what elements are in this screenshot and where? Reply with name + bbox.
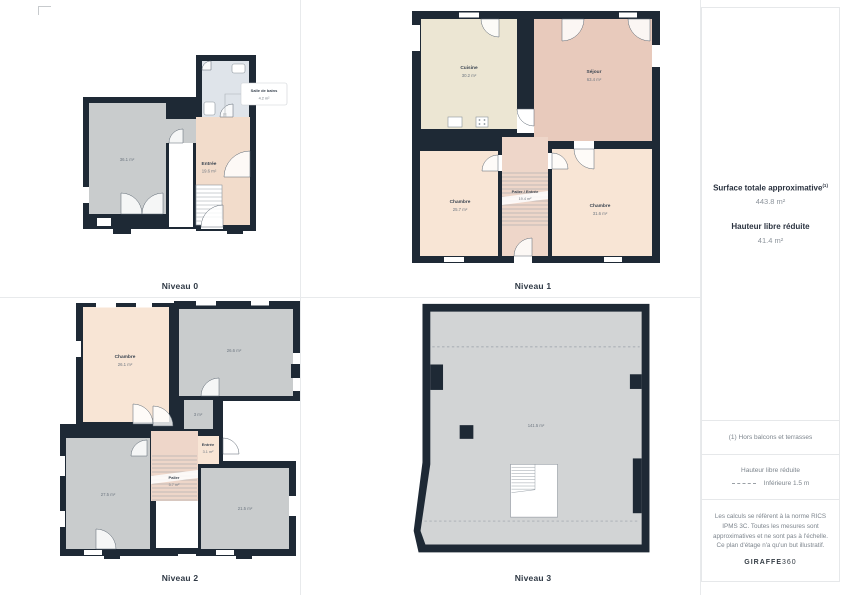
room-name: Entrée: [202, 442, 215, 447]
room-area: 3 m²: [194, 412, 203, 417]
reduced-height-value: 41.4 m²: [758, 236, 783, 245]
room-area: 25.7 m²: [453, 207, 468, 212]
room-area: 5.7 m²: [169, 483, 180, 487]
floor-plan-niveau-1: Cuisine 30.2 m² Séjour 63.4 m² Chambre 2…: [404, 11, 664, 269]
room-name: Palier: [169, 475, 180, 480]
room-name: Chambre: [590, 203, 611, 209]
room-area: 19.6 m²: [202, 169, 217, 174]
corner-mark-icon: [38, 6, 51, 15]
floor-plan-niveau-2: Chambre 26.1 m² 26.6 m² 3 m² Entrée 3.1 …: [56, 296, 306, 568]
legend-title: Hauteur libre réduite: [741, 467, 800, 474]
brand-bold: GIRAFFE: [744, 559, 782, 566]
level-title-niveau-2: Niveau 2: [110, 573, 250, 583]
room-name: Entrée: [202, 161, 217, 167]
footnote-text: (1) Hors balcons et terrasses: [729, 434, 812, 441]
level-title-niveau-0: Niveau 0: [110, 281, 250, 291]
room-area: 31.6 m²: [593, 211, 608, 216]
room-area: 30.2 m²: [462, 73, 477, 78]
disclaimer-panel: Les calculs se réfèrent à la norme RICS …: [701, 499, 840, 582]
floor-plan-niveau-3: 141.5 m²: [406, 296, 664, 568]
room-name: Salle de bains: [251, 88, 278, 93]
totals-panel: Surface totale approximative(1) 443.8 m²…: [701, 7, 840, 421]
room-area: 26.6 m²: [227, 348, 242, 353]
room-name: Chambre: [115, 354, 136, 360]
level-title-niveau-1: Niveau 1: [463, 281, 603, 291]
room-area: 36.1 m²: [120, 157, 135, 162]
reduced-height-heading: Hauteur libre réduite: [731, 222, 809, 231]
legend-panel: Hauteur libre réduite Inférieure 1.5 m: [701, 454, 840, 500]
giraffe360-logo: GIRAFFE360: [744, 558, 796, 569]
room-name: Palier / Entrée: [512, 189, 539, 194]
floor-plan-page: Salle de bains 4.2 m² 36.1 m² Entrée 19.…: [0, 0, 841, 595]
summary-sidebar: Surface totale approximative(1) 443.8 m²…: [701, 8, 840, 582]
room-area: 21.5 m²: [238, 506, 253, 511]
surface-total-heading: Surface totale approximative(1): [713, 183, 828, 193]
room-area: 141.5 m²: [528, 423, 545, 428]
legend-item: Inférieure 1.5 m: [764, 480, 810, 487]
room-area: 4.2 m²: [259, 97, 270, 101]
rooms-niveau-0: [89, 61, 250, 227]
room-area: 26.1 m²: [118, 362, 133, 367]
room-name: Chambre: [450, 199, 471, 205]
stairs-niveau-3: [511, 464, 558, 517]
disclaimer-text: Les calculs se réfèrent à la norme RICS …: [711, 512, 830, 551]
floor-plan-niveau-0: Salle de bains 4.2 m² 36.1 m² Entrée 19.…: [83, 55, 288, 237]
room-area: 63.4 m²: [587, 77, 602, 82]
brand-light: 360: [782, 559, 797, 566]
room-area: 27.5 m²: [101, 492, 116, 497]
reduced-height-dash-icon: [732, 483, 756, 484]
room-name: Séjour: [587, 69, 602, 75]
footnote-reference: (1): [822, 183, 828, 188]
level-title-niveau-3: Niveau 3: [463, 573, 603, 583]
footnote-panel: (1) Hors balcons et terrasses: [701, 420, 840, 455]
room-name: Cuisine: [460, 65, 478, 71]
room-area: 19.4 m²: [519, 197, 533, 201]
surface-total-value: 443.8 m²: [756, 197, 786, 206]
room-area: 3.1 m²: [203, 450, 214, 454]
